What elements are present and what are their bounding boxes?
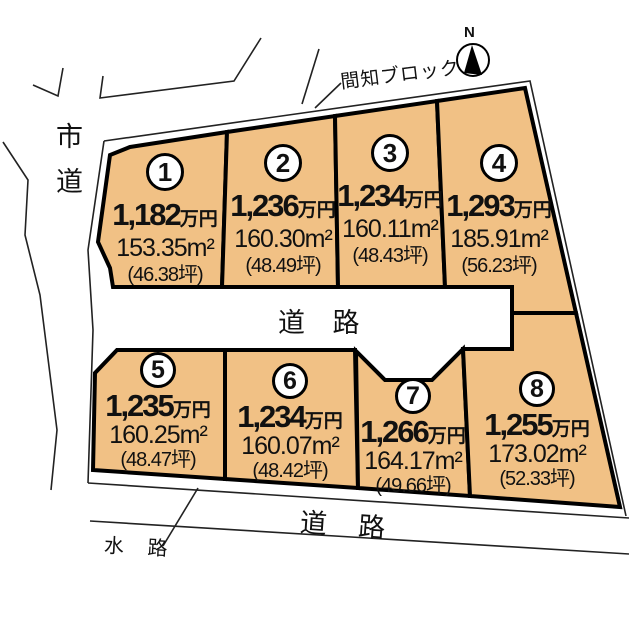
masonry-block-leader-line: [315, 83, 341, 108]
plot-4-number-badge: 4: [480, 144, 518, 182]
plot-2-price-value: 1,236: [230, 188, 298, 223]
city-road-label: 市道: [48, 122, 87, 212]
north-label: N: [464, 24, 475, 41]
plot-8-label: 8 1,255万円 173.02m² (52.33坪): [457, 371, 617, 489]
waterway-label: 水 路: [103, 529, 177, 562]
plot-8-area: 173.02m²: [457, 442, 617, 467]
plot-4-tsubo: (56.23坪): [419, 256, 579, 276]
plot-8-price-unit: 万円: [552, 419, 590, 440]
plot-3-number-badge: 3: [371, 134, 409, 172]
plot-7-price-value: 1,266: [360, 414, 428, 449]
center-road-label: 道 路: [278, 301, 370, 340]
plot-5-price-unit: 万円: [173, 400, 211, 421]
plot-1-price-value: 1,182: [112, 197, 180, 232]
plot-7-number-badge: 7: [395, 378, 431, 414]
plot-1-number-badge: 1: [146, 153, 184, 191]
plot-6-price-value: 1,234: [237, 399, 305, 434]
plot-6-number-badge: 6: [272, 363, 308, 399]
plot-4-price-value: 1,293: [446, 188, 514, 223]
plot-4-price-unit: 万円: [514, 200, 552, 221]
plot-4-label: 4 1,293万円 185.91m² (56.23坪): [419, 144, 579, 276]
land-plot-map: N 間知ブロック 市道 道 路 道 路 水 路 1 1,182万円 153.35…: [0, 0, 629, 617]
plot-5-number-badge: 5: [140, 352, 176, 388]
bottom-road-label: 道 路: [299, 501, 399, 547]
plot-8-tsubo: (52.33坪): [457, 469, 617, 489]
plot-8-number-badge: 8: [519, 371, 555, 407]
plot-8-price-value: 1,255: [484, 407, 552, 442]
plot-3-price-value: 1,234: [337, 178, 405, 213]
boundary-tick-line: [302, 49, 319, 104]
plot-4-price: 1,293万円: [419, 190, 579, 221]
survey-mark-line: [33, 68, 63, 96]
north-boundary-line: [100, 38, 261, 98]
plot-8-price: 1,255万円: [457, 409, 617, 440]
plot-5-price-value: 1,235: [105, 388, 173, 423]
plot-4-area: 185.91m²: [419, 227, 579, 252]
plot-2-number-badge: 2: [264, 144, 302, 182]
